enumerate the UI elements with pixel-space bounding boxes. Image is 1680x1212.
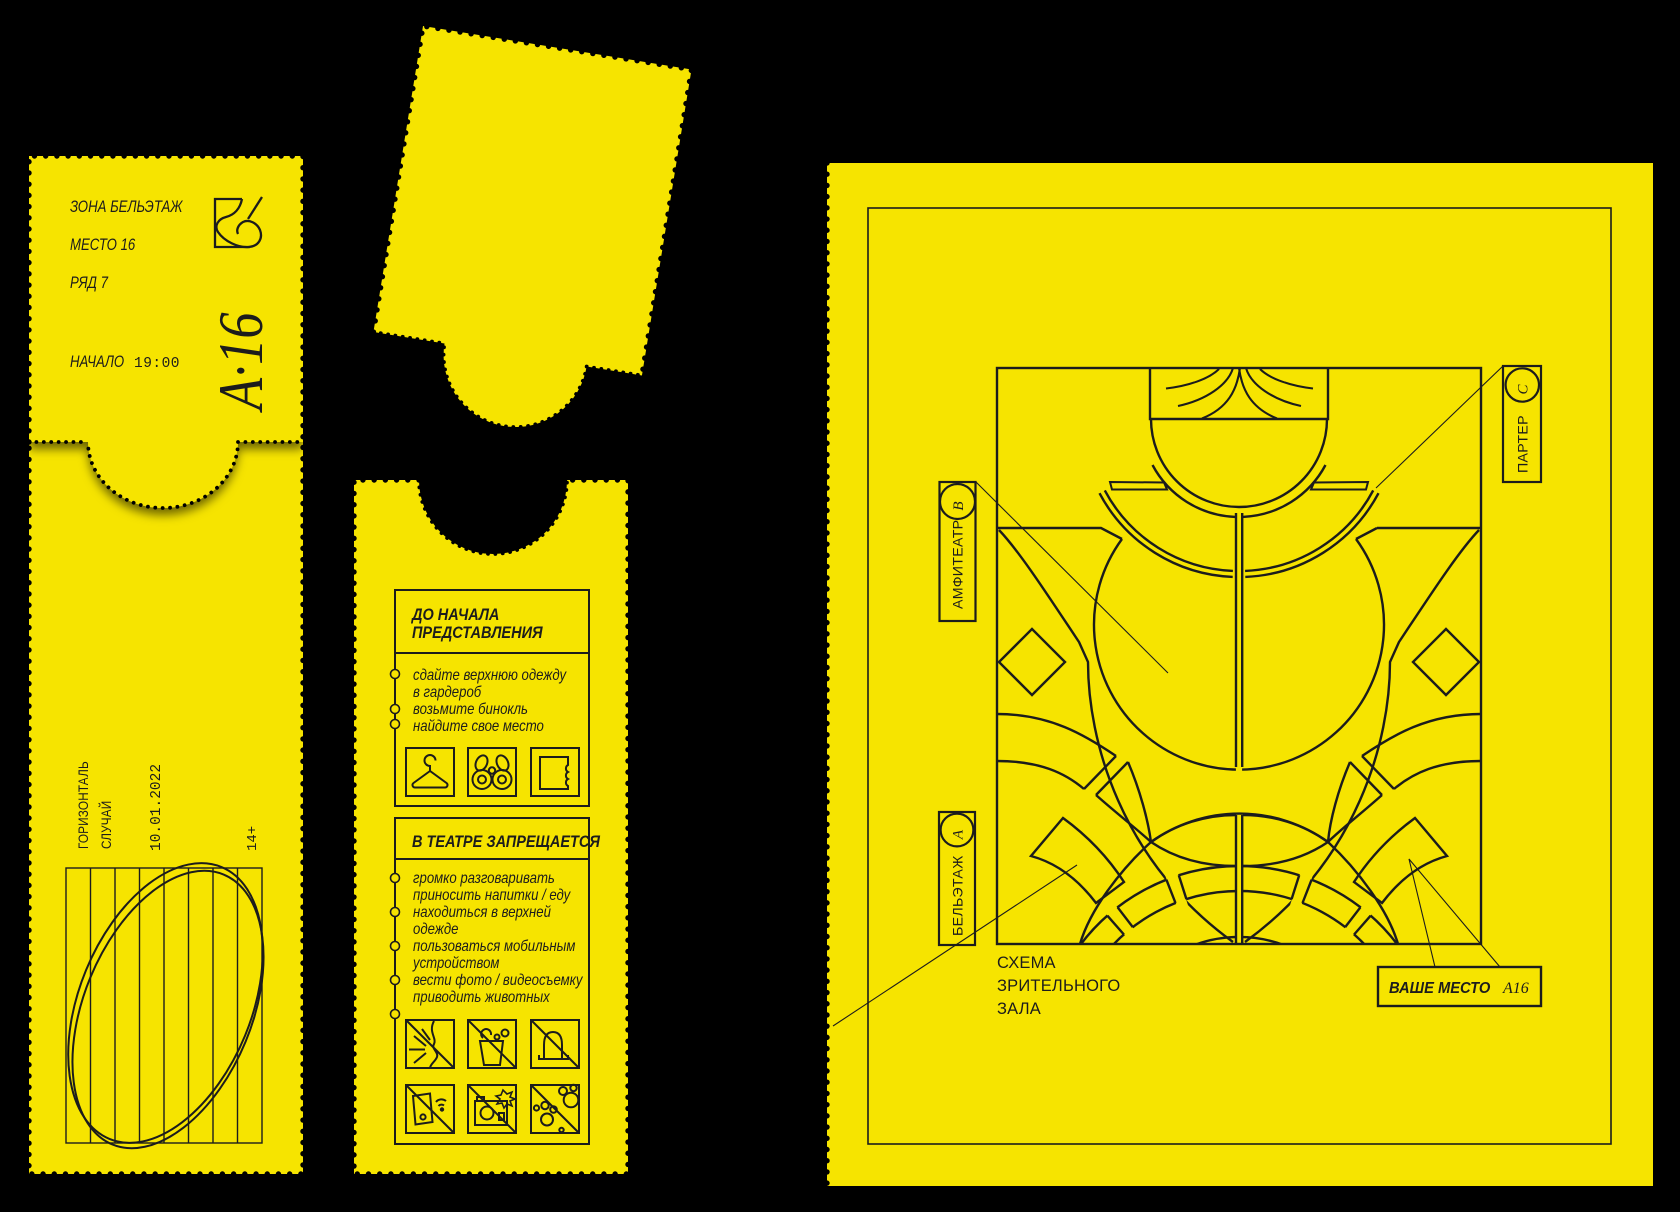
svg-text:С: С <box>1516 384 1532 395</box>
svg-text:14+: 14+ <box>245 826 261 851</box>
svg-text:РЯД 7: РЯД 7 <box>70 274 109 293</box>
svg-text:громко разговаривать: громко разговаривать <box>413 870 555 887</box>
svg-text:пользоваться мобильным: пользоваться мобильным <box>413 938 576 955</box>
svg-text:В ТЕАТРЕ ЗАПРЕЩАЕТСЯ: В ТЕАТРЕ ЗАПРЕЩАЕТСЯ <box>412 833 601 851</box>
svg-text:10.01.2022: 10.01.2022 <box>149 764 165 851</box>
svg-text:А·16: А·16 <box>205 312 276 413</box>
svg-text:находиться в верхней: находиться в верхней <box>413 904 551 921</box>
svg-text:ГОРИЗОНТАЛЬ: ГОРИЗОНТАЛЬ <box>76 761 91 849</box>
svg-text:устройством: устройством <box>412 955 499 972</box>
svg-text:ВАШЕ МЕСТО: ВАШЕ МЕСТО <box>1389 979 1490 997</box>
svg-text:19:00: 19:00 <box>134 356 180 372</box>
svg-text:приводить животных: приводить животных <box>413 989 550 1006</box>
svg-text:ПРЕДСТАВЛЕНИЯ: ПРЕДСТАВЛЕНИЯ <box>412 624 543 642</box>
svg-text:БЕЛЬЭТАЖ: БЕЛЬЭТАЖ <box>951 855 967 936</box>
svg-text:ЗОНА БЕЛЬЭТАЖ: ЗОНА БЕЛЬЭТАЖ <box>70 198 183 217</box>
svg-text:приносить напитки / еду: приносить напитки / еду <box>413 887 571 904</box>
svg-text:ПАРТЕР: ПАРТЕР <box>1516 415 1532 473</box>
svg-text:НАЧАЛО: НАЧАЛО <box>70 353 124 372</box>
svg-text:сдайте верхнюю одежду: сдайте верхнюю одежду <box>413 667 567 684</box>
svg-text:АМФИТЕАТР: АМФИТЕАТР <box>951 520 967 609</box>
svg-text:А16: А16 <box>1502 980 1529 997</box>
svg-text:МЕСТО 16: МЕСТО 16 <box>70 236 136 255</box>
svg-text:А: А <box>951 829 967 840</box>
svg-text:СХЕМА: СХЕМА <box>997 954 1056 972</box>
svg-text:одежде: одежде <box>413 921 458 938</box>
svg-text:ЗАЛА: ЗАЛА <box>997 1000 1041 1018</box>
svg-text:найдите свое место: найдите свое место <box>413 718 544 735</box>
svg-text:ЗРИТЕЛЬНОГО: ЗРИТЕЛЬНОГО <box>997 977 1120 995</box>
svg-text:вести фото / видеосъемку: вести фото / видеосъемку <box>413 972 583 989</box>
svg-text:возьмите бинокль: возьмите бинокль <box>413 701 528 718</box>
svg-text:ДО НАЧАЛА: ДО НАЧАЛА <box>410 606 499 624</box>
svg-text:СЛУЧАЙ: СЛУЧАЙ <box>98 801 114 849</box>
svg-text:В: В <box>951 501 967 510</box>
svg-text:в гардероб: в гардероб <box>413 684 482 701</box>
